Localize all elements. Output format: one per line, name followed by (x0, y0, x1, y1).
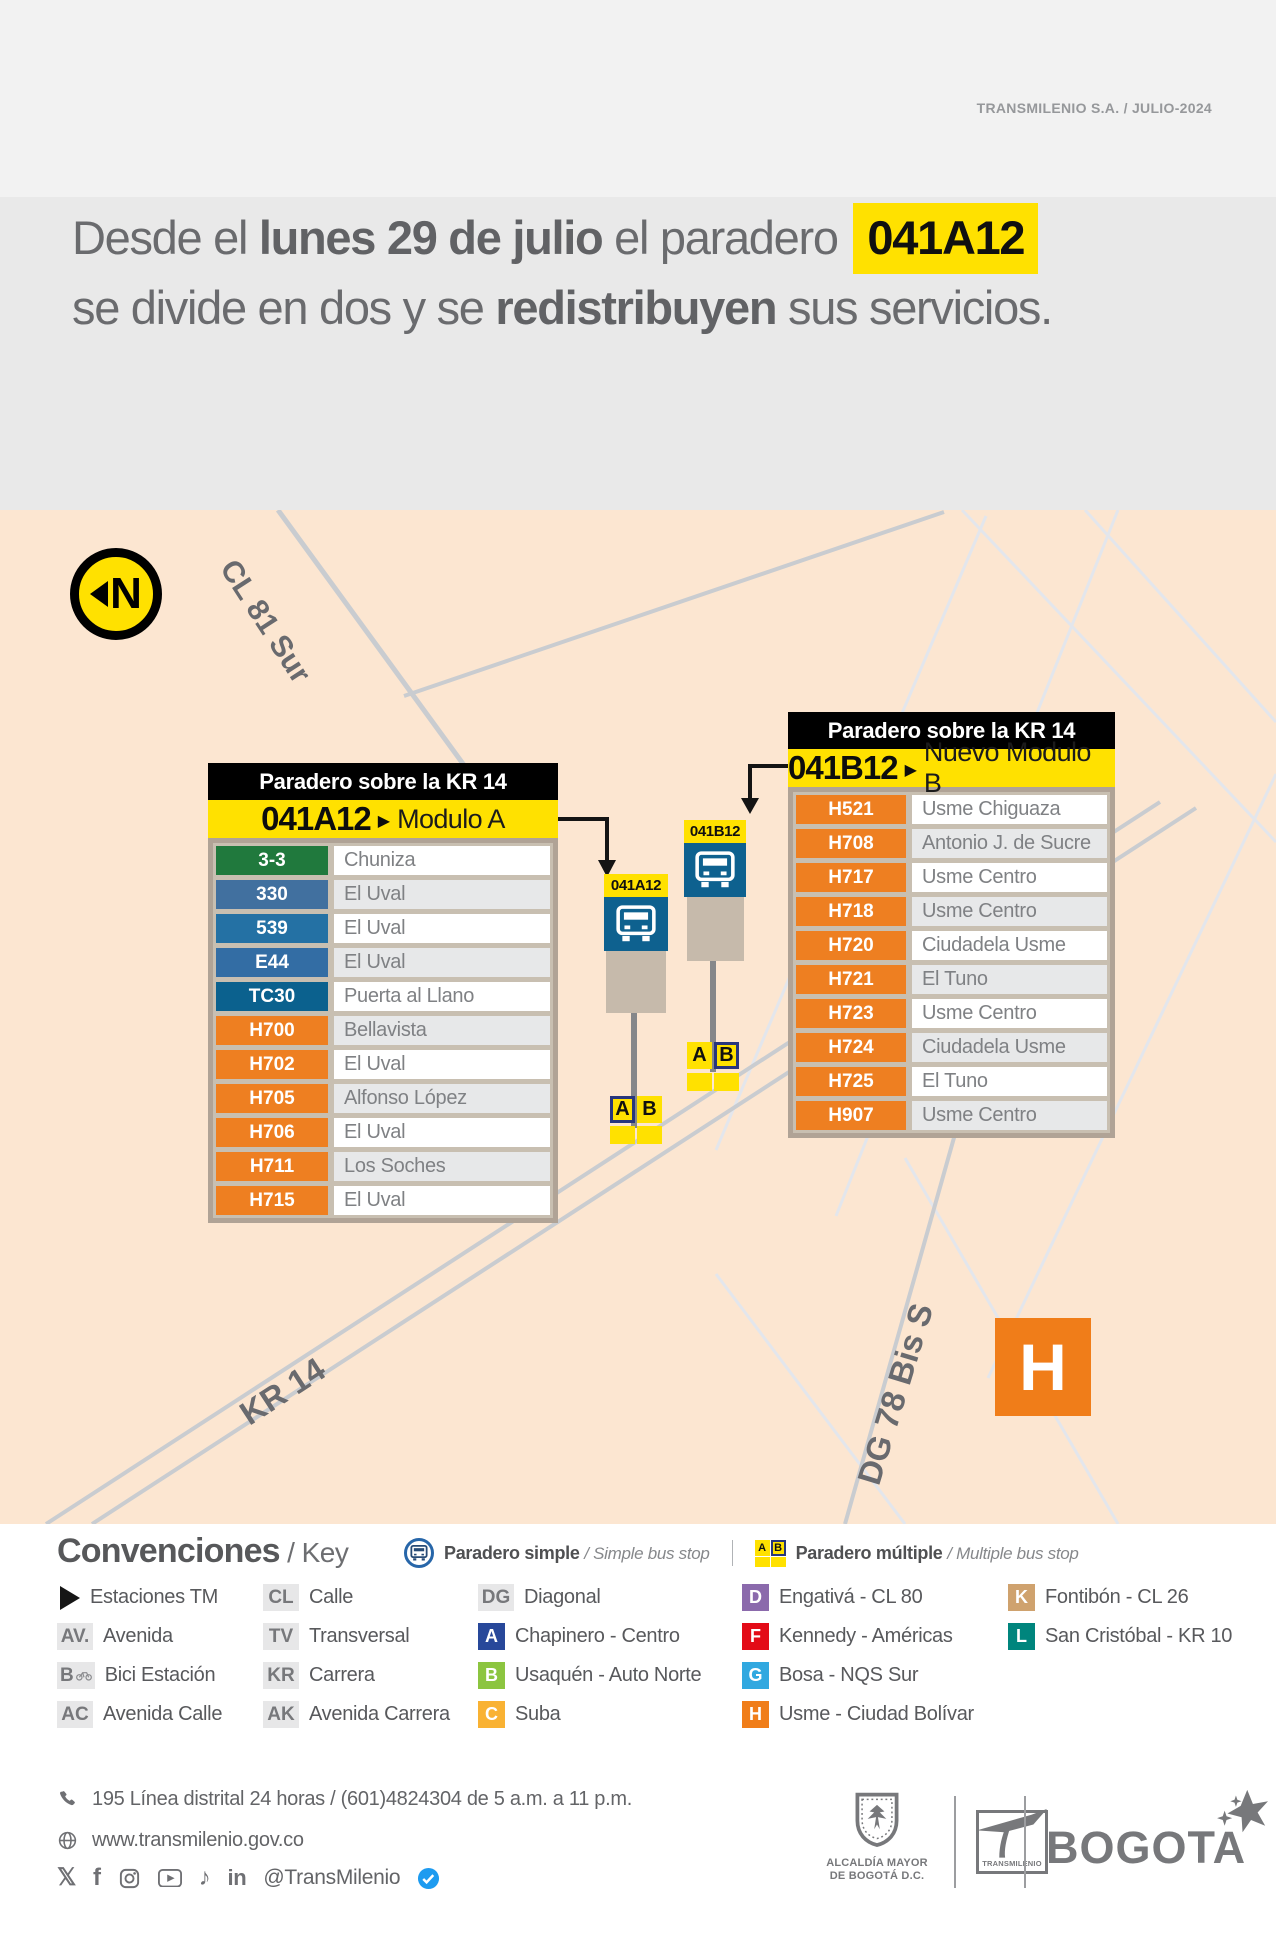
route-badge: E44 (216, 948, 328, 977)
tm-station-icon (60, 1586, 80, 1610)
website-text: www.transmilenio.gov.co (92, 1829, 304, 1852)
arrow-connectors (556, 766, 788, 860)
bus-icon (615, 905, 657, 943)
route-destination: El Tuno (912, 1067, 1107, 1096)
abbrev-badge: AC (57, 1701, 93, 1728)
module-letter-b: B (714, 1042, 739, 1069)
abbrev-badge: DG (478, 1584, 514, 1611)
platform-square (637, 1126, 662, 1144)
headline-line-2: se divide en dos y se redistribuyen sus … (72, 274, 1052, 341)
route-destination: El Uval (334, 1050, 550, 1079)
abbrev-badge: B (57, 1662, 95, 1689)
route-destination: Chuniza (334, 846, 550, 875)
legend-item: KRCarrera (263, 1662, 450, 1689)
verified-icon (417, 1867, 440, 1890)
website-row: www.transmilenio.gov.co (57, 1829, 304, 1852)
route-destination: El Uval (334, 948, 550, 977)
route-destination: El Uval (334, 914, 550, 943)
legend-item: DGDiagonal (478, 1584, 701, 1611)
corner-note: TRANSMILENIO S.A. / JULIO-2024 (977, 100, 1212, 116)
module-letter-b: B (637, 1096, 662, 1123)
triangle-icon: ▶ (905, 760, 917, 780)
table-row: H702El Uval (216, 1050, 550, 1079)
stop-b-sign (684, 843, 746, 897)
facebook-icon: f (93, 1866, 101, 1890)
zone-badge: G (742, 1662, 769, 1689)
phone-text: 195 Línea distrital 24 horas / (601)4824… (92, 1788, 632, 1811)
zone-badge: K (1008, 1584, 1035, 1611)
zone-badge: H (742, 1701, 769, 1728)
simple-stop-label: Paradero simple (444, 1543, 584, 1563)
platform-square (714, 1073, 739, 1091)
legend-col-2: CLCalle TVTransversal KRCarrera AKAvenid… (263, 1584, 450, 1728)
route-badge: H711 (216, 1152, 328, 1181)
route-badge: 3-3 (216, 846, 328, 875)
legend-col-3: DGDiagonal AChapinero - Centro BUsaquén … (478, 1584, 701, 1728)
table-row: E44El Uval (216, 948, 550, 977)
route-destination: Ciudadela Usme (912, 1033, 1107, 1062)
phone-row: 195 Línea distrital 24 horas / (601)4824… (57, 1788, 632, 1811)
youtube-icon (158, 1869, 182, 1887)
abbrev-badge: AV. (57, 1623, 93, 1650)
alcaldia-logo: ALCALDÍA MAYORDE BOGOTÁ D.C. (816, 1790, 938, 1883)
stop-code: 041B12 (788, 749, 898, 787)
table-row: H706El Uval (216, 1118, 550, 1147)
table-header: Paradero sobre la KR 14 (208, 763, 558, 800)
module-name: Modulo A (397, 804, 505, 835)
instagram-icon (118, 1867, 141, 1890)
route-destination: Usme Centro (912, 999, 1107, 1028)
stop-b-code-label: 041B12 (684, 820, 746, 843)
table-row: H700Bellavista (216, 1016, 550, 1045)
legend-item: AV.Avenida (57, 1623, 222, 1650)
route-destination: El Uval (334, 1118, 550, 1147)
table-row: H708Antonio J. de Sucre (796, 829, 1107, 858)
table-row: 539El Uval (216, 914, 550, 943)
table-row: 3-3Chuniza (216, 846, 550, 875)
zone-badge: B (478, 1662, 505, 1689)
legend-key-row: Paradero simple / Simple bus stop AB Par… (404, 1538, 1079, 1568)
table-row: H718Usme Centro (796, 897, 1107, 926)
route-badge: H705 (216, 1084, 328, 1113)
stop-code: 041A12 (261, 800, 371, 838)
route-destination: Bellavista (334, 1016, 550, 1045)
legend-col-1: Estaciones TM AV.Avenida BBici Estación … (57, 1584, 222, 1728)
legend-item: ACAvenida Calle (57, 1701, 222, 1728)
north-arrow-icon (90, 581, 108, 607)
route-badge: H721 (796, 965, 906, 994)
route-list: 3-3Chuniza 330El Uval 539El Uval E44El U… (208, 838, 558, 1223)
table-row: H717Usme Centro (796, 863, 1107, 892)
footer-logos: ALCALDÍA MAYORDE BOGOTÁ D.C. TRANSMILENI… (790, 1788, 1230, 1908)
route-badge: H717 (796, 863, 906, 892)
zone-badge: F (742, 1623, 769, 1650)
headline: Desde el lunes 29 de julio el paradero 0… (72, 203, 1052, 341)
north-letter: N (110, 572, 142, 616)
legend-item: AChapinero - Centro (478, 1623, 701, 1650)
table-row: 330El Uval (216, 880, 550, 909)
route-badge: H702 (216, 1050, 328, 1079)
platform-square (610, 1126, 635, 1144)
divider (954, 1796, 956, 1888)
triangle-icon: ▶ (378, 811, 390, 831)
arrow-head-right (741, 798, 759, 814)
table-row: TC30Puerta al Llano (216, 982, 550, 1011)
legend-col-4: DEngativá - CL 80 FKennedy - Américas GB… (742, 1584, 974, 1728)
headline-line-1: Desde el lunes 29 de julio el paradero 0… (72, 203, 1052, 274)
legend-title: Convenciones / Key (57, 1532, 348, 1571)
bus-icon (694, 851, 736, 889)
multiple-stop-label: Paradero múltiple (796, 1543, 948, 1563)
transmilenio-swoosh-icon (971, 1805, 1049, 1864)
bogota-logo: BOGOTA (1046, 1822, 1246, 1874)
route-badge: 539 (216, 914, 328, 943)
north-compass-icon: N (70, 548, 162, 640)
legend-item: DEngativá - CL 80 (742, 1584, 974, 1611)
table-row: H521Usme Chiguaza (796, 795, 1107, 824)
route-badge: H708 (796, 829, 906, 858)
x-icon: 𝕏 (57, 1866, 76, 1890)
route-list: H521Usme Chiguaza H708Antonio J. de Sucr… (788, 787, 1115, 1138)
route-destination: El Tuno (912, 965, 1107, 994)
top-strip: TRANSMILENIO S.A. / JULIO-2024 (0, 0, 1276, 197)
route-destination: Antonio J. de Sucre (912, 829, 1107, 858)
legend-item: FKennedy - Américas (742, 1623, 974, 1650)
route-destination: El Uval (334, 1186, 550, 1215)
table-row: H715El Uval (216, 1186, 550, 1215)
route-badge: H718 (796, 897, 906, 926)
legend-item: BBici Estación (57, 1662, 222, 1689)
route-badge: H720 (796, 931, 906, 960)
module-letter-a: A (687, 1042, 712, 1069)
route-badge: H700 (216, 1016, 328, 1045)
legend-item: HUsme - Ciudad Bolívar (742, 1701, 974, 1728)
legend-item: CSuba (478, 1701, 701, 1728)
module-name: Nuevo Modulo B (924, 737, 1115, 799)
table-row: H721El Tuno (796, 965, 1107, 994)
table-row: H720Ciudadela Usme (796, 931, 1107, 960)
abbrev-badge: CL (263, 1584, 299, 1611)
stop-b-module-letters: A B (687, 1042, 739, 1069)
zone-badge: C (478, 1701, 505, 1728)
table-module-header: 041B12 ▶ Nuevo Modulo B (788, 749, 1115, 787)
route-destination: Usme Centro (912, 897, 1107, 926)
poster: TRANSMILENIO S.A. / JULIO-2024 Desde el … (0, 0, 1276, 1949)
route-destination: Ciudadela Usme (912, 931, 1107, 960)
transmilenio-logo: TRANSMILENIO (976, 1810, 1048, 1874)
legend-item: GBosa - NQS Sur (742, 1662, 974, 1689)
route-badge: H725 (796, 1067, 906, 1096)
multiple-stop-icon: AB (755, 1540, 786, 1567)
social-handle: @TransMilenio (263, 1866, 400, 1890)
star-icon (1202, 1788, 1268, 1845)
module-letter-a: A (610, 1096, 635, 1123)
route-destination: Usme Centro (912, 1101, 1107, 1130)
stop-a-module-letters: A B (610, 1096, 662, 1123)
route-badge: H715 (216, 1186, 328, 1215)
stop-a-code-label: 041A12 (604, 874, 668, 897)
headline-highlight-code: 041A12 (853, 203, 1038, 274)
alcaldia-text: ALCALDÍA MAYORDE BOGOTÁ D.C. (816, 1857, 938, 1883)
zone-badge: L (1008, 1623, 1035, 1650)
route-badge: H723 (796, 999, 906, 1028)
divider (732, 1540, 733, 1566)
route-destination: Puerta al Llano (334, 982, 550, 1011)
globe-icon (57, 1830, 78, 1851)
zone-h-badge: H (995, 1318, 1091, 1416)
platform-square (687, 1073, 712, 1091)
route-destination: Alfonso López (334, 1084, 550, 1113)
table-module-header: 041A12 ▶ Modulo A (208, 800, 558, 838)
stop-b-base (687, 897, 744, 961)
linkedin-icon: in (227, 1867, 246, 1889)
route-badge: H521 (796, 795, 906, 824)
table-row: H907Usme Centro (796, 1101, 1107, 1130)
route-badge: 330 (216, 880, 328, 909)
stop-a-platforms (610, 1126, 662, 1144)
stop-b-platforms (687, 1073, 739, 1091)
legend-item: Estaciones TM (57, 1584, 222, 1611)
divider (1024, 1796, 1026, 1888)
legend-item: TVTransversal (263, 1623, 450, 1650)
abbrev-badge: TV (263, 1623, 299, 1650)
simple-stop-icon (404, 1538, 434, 1568)
abbrev-badge: KR (263, 1662, 299, 1689)
table-row: H725El Tuno (796, 1067, 1107, 1096)
legend-item: AKAvenida Carrera (263, 1701, 450, 1728)
route-badge: TC30 (216, 982, 328, 1011)
route-badge: H724 (796, 1033, 906, 1062)
route-destination: El Uval (334, 880, 550, 909)
headline-band: Desde el lunes 29 de julio el paradero 0… (0, 197, 1276, 510)
route-badge: H907 (796, 1101, 906, 1130)
table-row: H723Usme Centro (796, 999, 1107, 1028)
stop-a-sign (604, 897, 668, 951)
bike-icon (76, 1670, 92, 1681)
table-row: H711Los Soches (216, 1152, 550, 1181)
route-destination: Los Soches (334, 1152, 550, 1181)
legend-item: LSan Cristóbal - KR 10 (1008, 1623, 1232, 1650)
zone-badge: A (478, 1623, 505, 1650)
social-row: 𝕏 f ♪ in @TransMilenio (57, 1866, 440, 1890)
legend-item: KFontibón - CL 26 (1008, 1584, 1232, 1611)
route-badge: H706 (216, 1118, 328, 1147)
tiktok-icon: ♪ (199, 1866, 211, 1890)
legend-col-5: KFontibón - CL 26 LSan Cristóbal - KR 10 (1008, 1584, 1232, 1650)
zone-badge: D (742, 1584, 769, 1611)
transmilenio-text: TRANSMILENIO (981, 1859, 1043, 1868)
phone-icon (57, 1789, 78, 1810)
table-row: H705Alfonso López (216, 1084, 550, 1113)
paradero-table-041b12: Paradero sobre la KR 14 041B12 ▶ Nuevo M… (788, 712, 1115, 1138)
stop-a-base (606, 951, 666, 1013)
table-row: H724Ciudadela Usme (796, 1033, 1107, 1062)
route-destination: Usme Chiguaza (912, 795, 1107, 824)
route-destination: Usme Centro (912, 863, 1107, 892)
legend: Convenciones / Key Paradero simple / Sim… (0, 1524, 1276, 1760)
paradero-table-041a12: Paradero sobre la KR 14 041A12 ▶ Modulo … (208, 763, 558, 1223)
abbrev-badge: AK (263, 1701, 299, 1728)
legend-item: CLCalle (263, 1584, 450, 1611)
legend-item: BUsaquén - Auto Norte (478, 1662, 701, 1689)
alcaldia-crest-icon (849, 1790, 905, 1852)
